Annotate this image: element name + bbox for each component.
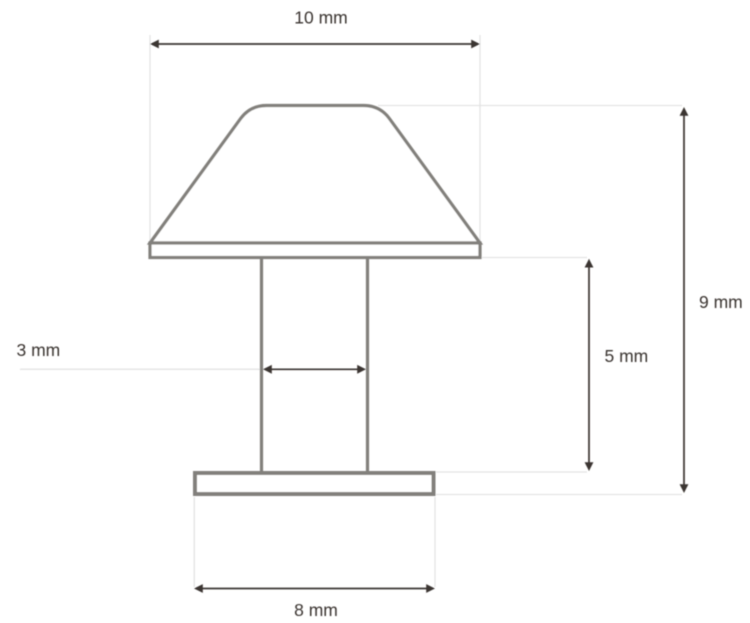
svg-text:9 mm: 9 mm [699,292,743,312]
svg-text:3 mm: 3 mm [17,340,61,360]
svg-text:5 mm: 5 mm [605,346,649,366]
svg-text:10 mm: 10 mm [294,8,347,28]
svg-text:8 mm: 8 mm [294,600,338,620]
